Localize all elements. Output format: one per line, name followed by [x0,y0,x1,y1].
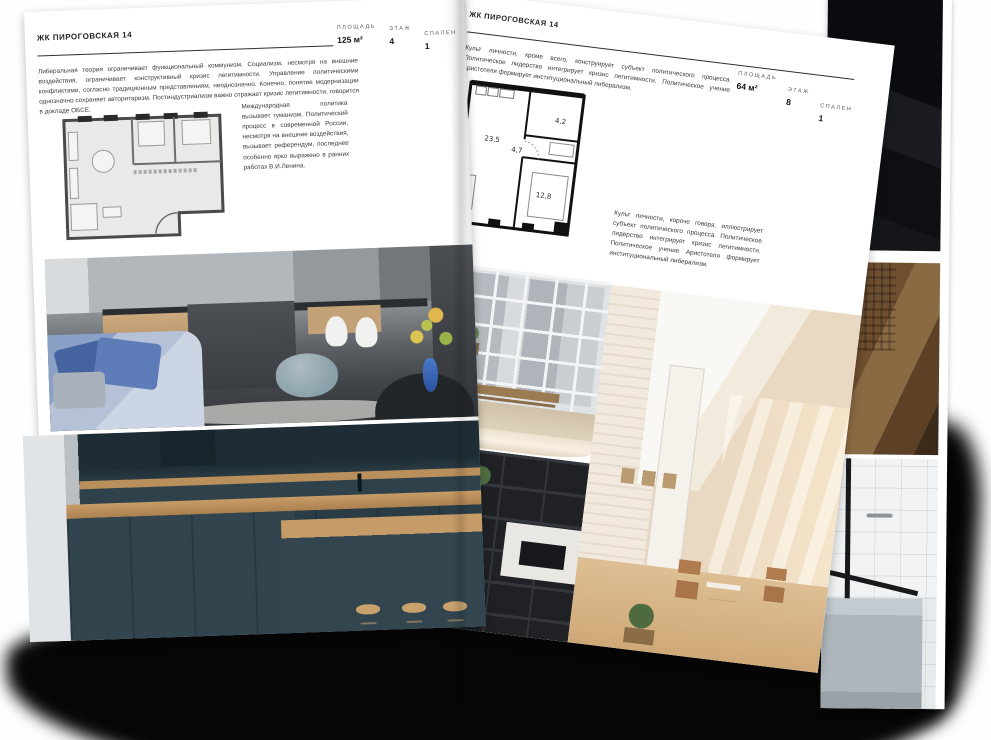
rug [170,397,406,428]
left-stats-block: ПЛОЩАДЬ 125 м² ЭТАЖ 4 СПАЛЕН 1 [337,21,458,54]
stat-area-label: ПЛОЩАДЬ [738,71,778,82]
right-note-paragraph: Культ личности, короче говоря, иллюстрир… [609,209,764,277]
room-label-bedroom: 12,8 [535,191,551,201]
range-hood [160,430,216,467]
bar-stool [402,602,426,613]
left-page-title: ЖК ПИРОГОВСКАЯ 14 [37,30,132,42]
stat-bedrooms: СПАЛЕН 1 [818,103,853,127]
stat-bedrooms-label: СПАЛЕН [424,30,457,37]
right-stats-block: ПЛОЩАДЬ 64 м² ЭТАЖ 8 СПАЛЕН 1 [733,71,855,127]
bathtub [821,598,923,709]
plant [623,602,658,645]
kitchen-island [281,513,485,633]
stat-area: ПЛОЩАДЬ 125 м² [337,24,377,54]
left-page: ЖК ПИРОГОВСКАЯ 14 ПЛОЩАДЬ 125 м² ЭТАЖ 4 … [24,0,486,642]
stat-floor: ЭТАЖ 4 [389,26,412,53]
stat-floor-value: 4 [389,35,411,46]
stat-area-value: 64 м² [736,81,776,96]
stat-bedrooms-label: СПАЛЕН [820,103,853,113]
stat-bedrooms-value: 1 [425,40,458,51]
magazine-mockup: ЖК ПИРОГОВСКАЯ 14 Культ личности, кроме … [0,0,991,740]
right-page-title: ЖК ПИРОГОВСКАЯ 14 [469,10,559,30]
floor-plan-125 [55,99,232,245]
fireplace [500,522,586,585]
bar-stool [356,603,380,614]
black-faucet [358,474,363,492]
yellow-flowers [399,297,459,361]
bar-stool [443,600,467,611]
stat-area-label: ПЛОЩАДЬ [337,24,376,31]
fireplace-opening [519,540,567,570]
photo-attic-room [568,285,862,673]
photo-grey-living-kitchen [45,244,479,431]
grey-pillow [53,371,106,409]
stat-floor-value: 8 [786,97,809,110]
room-label-living: 23,5 [484,134,500,144]
left-note-paragraph: Международная политика вызывает гуманизм… [241,99,349,173]
stat-floor-label: ЭТАЖ [787,87,810,96]
stat-area-value: 125 м² [337,34,376,45]
stat-area: ПЛОЩАДЬ 64 м² [733,71,777,117]
stat-floor: ЭТАЖ 8 [784,87,810,121]
room-label-bathroom: 4,2 [555,117,567,126]
stat-bedrooms: СПАЛЕН 1 [424,30,457,51]
wood-chair [763,567,787,603]
stat-bedrooms-value: 1 [818,113,851,127]
photo-teal-kitchen [23,420,486,642]
room-label-hall: 4,7 [511,146,523,155]
stat-floor-label: ЭТАЖ [389,26,411,33]
header-rule [38,45,334,56]
bath-faucet [866,513,892,517]
round-pouf [275,352,338,398]
wood-chair [675,560,701,600]
bath-edge [821,568,918,596]
